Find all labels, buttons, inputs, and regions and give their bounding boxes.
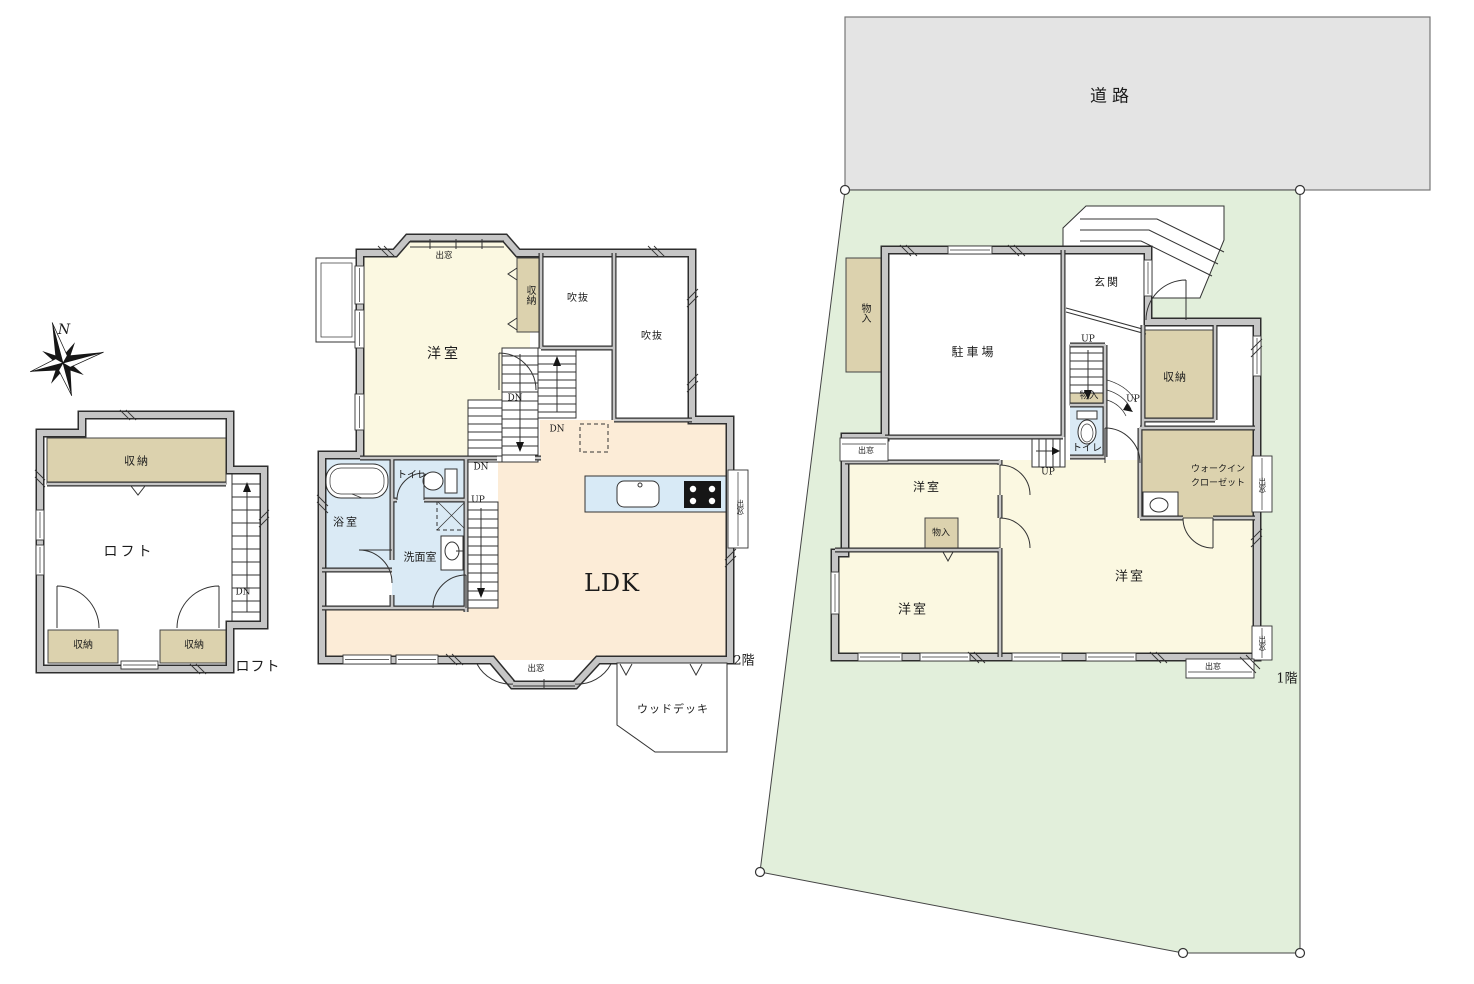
room-label-loft-storage-right: 収納 [184, 641, 204, 651]
stairs-label-1f-up-c: UP [1041, 469, 1055, 478]
stairs-label-2f-up: UP [471, 497, 485, 506]
stairs-loft [232, 472, 262, 622]
room-label-monoire-room: 物入 [932, 530, 950, 539]
room-label-loft-storage-left: 収納 [73, 641, 93, 651]
balcony-box [316, 258, 357, 342]
wic-label-line2: クローゼット [1191, 477, 1245, 491]
floorplan-drawing [0, 0, 1474, 984]
room-label-ldk: LDK [584, 571, 640, 595]
room-label-parking: 駐車場 [951, 346, 996, 358]
kitchen-counter [585, 476, 728, 512]
stove-icon [684, 481, 721, 508]
bay-window-label-2f-bottom: 出窓 [527, 665, 544, 674]
room-label-fukinuke-a: 吹抜 [567, 294, 589, 304]
bay-window-label-1f-left: 出窓 [858, 447, 874, 455]
room-label-yoshitsu-a: 洋室 [913, 481, 941, 493]
plan-caption-loft: ロフト [236, 660, 281, 674]
room-label-shuno-1f: 収納 [1163, 372, 1187, 383]
road-label: 道路 [1090, 89, 1134, 106]
washbasin-icon-1f [1143, 492, 1178, 518]
room-label-genkan: 玄関 [1094, 277, 1120, 288]
compass-north-label: N [58, 323, 70, 337]
stairs-label-1f-up-a: UP [1081, 336, 1095, 345]
stairs-label-2f-dn-c: DN [473, 464, 488, 473]
room-label-yoshitsu-b: 洋室 [898, 604, 928, 617]
room-label-loft-storage-top: 収納 [124, 456, 150, 467]
room-label-fukinuke-b: 吹抜 [641, 332, 663, 342]
stairs-label-2f-dn-b: DN [549, 426, 564, 435]
room-yoshitsu-a [845, 462, 1000, 550]
stairs-label-2f-dn-a: DN [507, 395, 522, 404]
bay-window-label-2f-top: 出窓 [435, 252, 452, 261]
stairs-label-1f-up-b: UP [1126, 396, 1140, 405]
road-area [845, 17, 1430, 190]
room-label-loft: ロフト [104, 545, 155, 559]
bay-window-label-1f-bottom: 出窓 [1205, 663, 1221, 671]
loft-plan [35, 410, 269, 674]
room-label-shuno-2f: 収納 [524, 285, 534, 305]
room-label-monoire-side: 物入 [859, 303, 869, 323]
bathtub-icon [326, 464, 388, 498]
room-label-toilet-2f: トイレ [397, 471, 427, 481]
bay-window-label-2f-right: 出窓 [736, 500, 744, 515]
wood-deck-label: ウッドデッキ [637, 704, 709, 715]
bay-window-label-1f-right-b: 出窓 [1258, 636, 1266, 651]
plan-caption-1f: 1階 [1276, 673, 1297, 686]
room-label-yoshitsu-c: 洋室 [1115, 571, 1145, 584]
room-label-yoshitsu-2f: 洋室 [427, 347, 461, 361]
plan-caption-2f: 2階 [733, 655, 754, 668]
room-label-toilet-1f: トイレ [1072, 444, 1102, 454]
stairs-1f-parking-steps [1032, 435, 1065, 467]
toilet-icon-1f [1077, 411, 1097, 444]
room-label-senmen: 洗面室 [404, 552, 437, 563]
washbasin-icon-2f [441, 536, 463, 570]
bay-window-label-1f-right-a: 出窓 [1258, 478, 1266, 493]
room-label-bath: 浴室 [333, 517, 359, 528]
wic-label-line1: ウォークイン [1191, 464, 1245, 478]
stairs-label-loft-dn: DN [235, 589, 250, 598]
second-floor-plan [316, 238, 748, 752]
floorplan-page: N 収納 ロフト DN 収納 収納 ロフト 出窓 洋室 収納 吹抜 吹抜 DN … [0, 0, 1474, 984]
room-label-monoire-stair: 物入 [1079, 391, 1098, 401]
room-label-wic: ウォークイン クローゼット [1191, 464, 1245, 491]
